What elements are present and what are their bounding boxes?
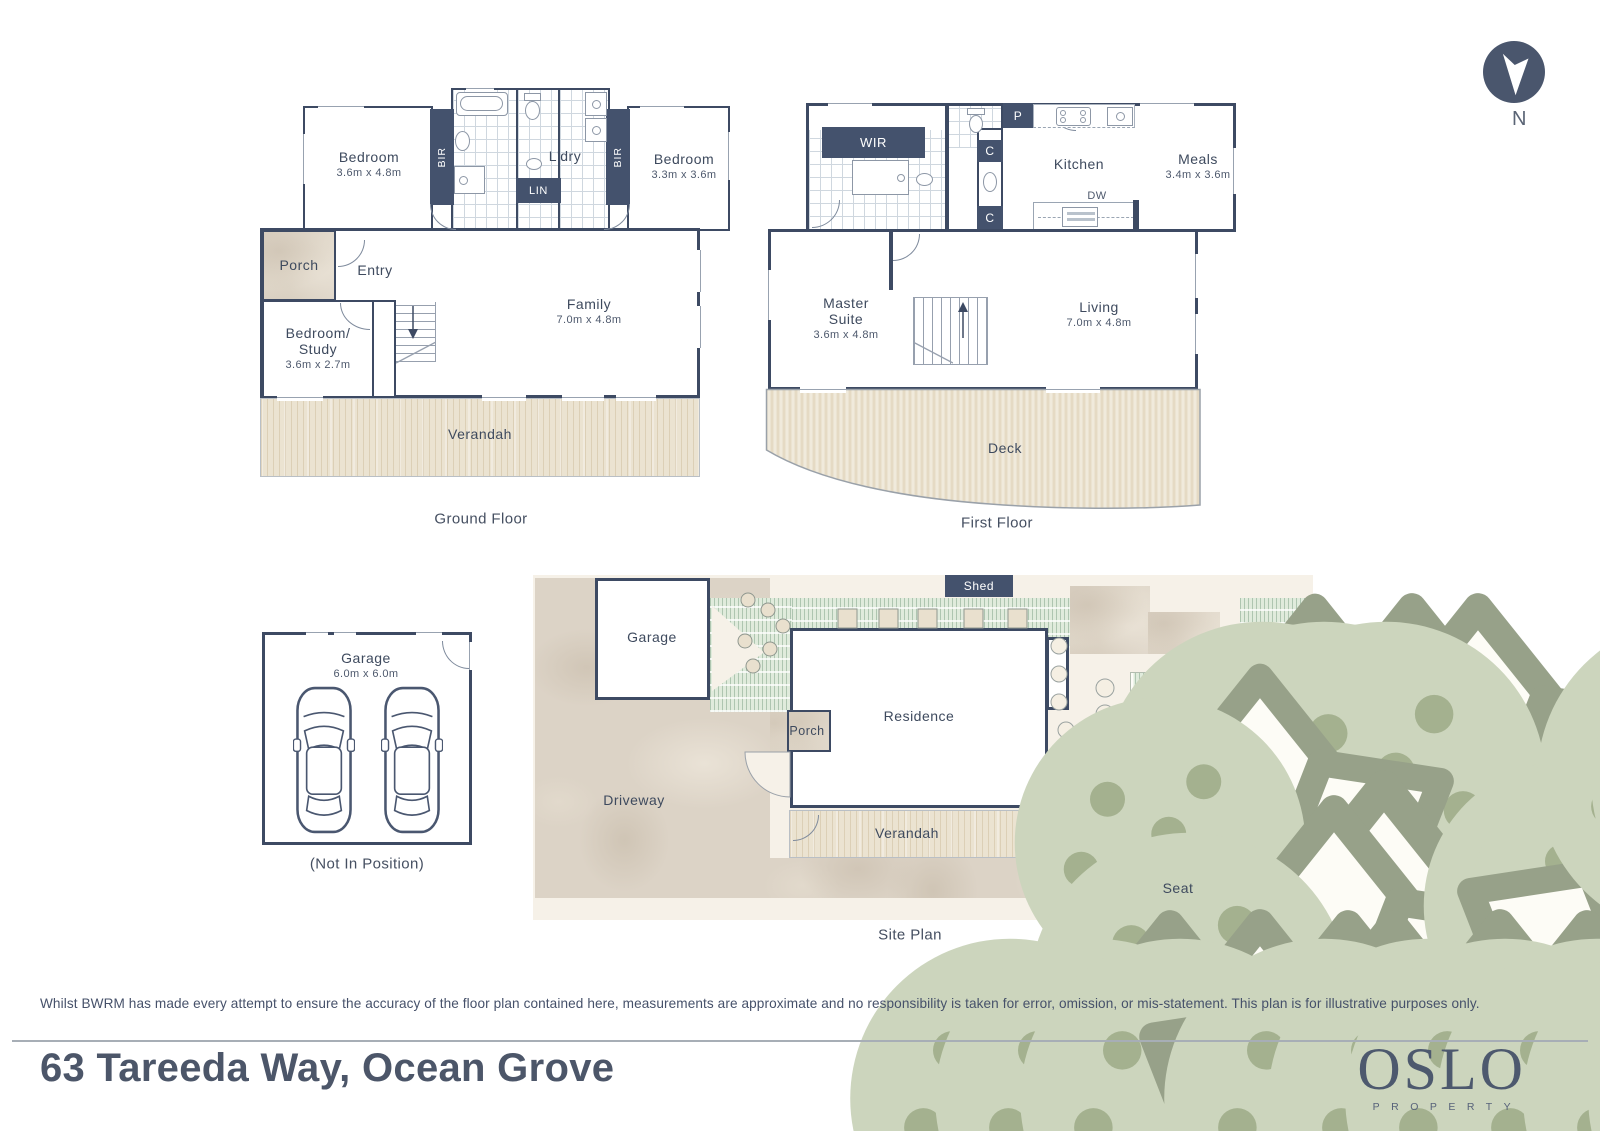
gf-stair-wall xyxy=(372,300,396,398)
shower-icon xyxy=(454,166,485,194)
ff-wir: WIR xyxy=(822,127,925,158)
gf-wc-basin-icon xyxy=(526,158,542,170)
floorplan-sheet: N BIR BIR LIN xyxy=(0,0,1600,1131)
window xyxy=(466,85,494,92)
ff-toilet-icon xyxy=(969,115,983,133)
ff-stair-line xyxy=(913,340,953,364)
gf-stair-line xyxy=(396,338,436,364)
window xyxy=(300,134,307,184)
site-porch-label: Porch xyxy=(789,724,824,738)
window xyxy=(1192,314,1199,354)
north-label: N xyxy=(1512,108,1526,131)
footer-divider xyxy=(12,1040,1588,1042)
window xyxy=(416,629,442,636)
ff-cupboard-basin-icon xyxy=(983,172,997,192)
ff-c1-label: C xyxy=(985,144,994,158)
site-garage-label: Garage xyxy=(627,629,677,645)
gf-verandah-label: Verandah xyxy=(448,426,512,442)
site-verandah-label: Verandah xyxy=(875,825,939,841)
gf-family-label: Family7.0m x 4.8m xyxy=(557,296,622,326)
site-plan-caption: Site Plan xyxy=(878,927,942,944)
toilet-tank-icon xyxy=(524,93,541,101)
gf-bir-right: BIR xyxy=(606,109,630,205)
ff-wir-label: WIR xyxy=(860,135,887,150)
disclaimer-text: Whilst BWRM has made every attempt to en… xyxy=(40,996,1570,1011)
window xyxy=(765,270,772,320)
window xyxy=(697,250,704,292)
ff-meals-label: Meals3.4m x 3.6m xyxy=(1166,151,1231,181)
window xyxy=(828,100,872,107)
dishwasher-icon xyxy=(1062,207,1098,227)
window xyxy=(306,629,328,636)
gf-bir-left-label: BIR xyxy=(436,147,448,168)
gf-porch-label: Porch xyxy=(279,257,318,273)
ff-cupboard-top: C xyxy=(977,140,1003,162)
ff-living-label: Living7.0m x 4.8m xyxy=(1067,299,1132,329)
window xyxy=(334,629,356,636)
north-arrow-icon xyxy=(1483,41,1547,105)
car-icon xyxy=(293,686,355,834)
stair-up-arrow-icon xyxy=(955,300,971,340)
window xyxy=(616,394,656,401)
car-icon xyxy=(381,686,443,834)
gf-bedroom1-door-arc xyxy=(430,204,456,230)
gf-bir-left: BIR xyxy=(430,109,454,205)
gf-linen-label: LIN xyxy=(529,185,548,197)
property-address: 63 Tareeda Way, Ocean Grove xyxy=(40,1046,614,1091)
stair-down-arrow-icon xyxy=(405,306,421,340)
ff-pantry-label: P xyxy=(1014,109,1023,123)
ff-deck-area xyxy=(765,388,1202,513)
ff-shower-icon xyxy=(852,160,909,195)
site-driveway-label: Driveway xyxy=(603,792,665,808)
window xyxy=(277,394,323,401)
ground-floor-caption: Ground Floor xyxy=(434,511,527,528)
gf-bedroom1-label: Bedroom3.6m x 4.8m xyxy=(337,149,402,179)
window xyxy=(1192,254,1199,298)
ff-kitchen-label: Kitchen xyxy=(1054,156,1104,172)
gf-basin-icon xyxy=(455,131,470,151)
oven-icon xyxy=(1107,107,1133,126)
site-residence-label: Residence xyxy=(884,708,955,724)
agency-logo-name: OSLO xyxy=(1357,1038,1526,1101)
site-decor xyxy=(533,575,1333,925)
gf-bedroom2-label: Bedroom3.3m x 3.6m xyxy=(652,151,717,181)
window xyxy=(725,132,732,180)
garage-plan-label: Garage6.0m x 6.0m xyxy=(334,650,399,680)
stove-icon xyxy=(1056,107,1091,126)
gf-study-label: Bedroom/Study 3.6m x 2.7m xyxy=(286,325,351,371)
window xyxy=(562,394,604,401)
ff-c2-label: C xyxy=(985,211,994,225)
ff-pantry: P xyxy=(1003,103,1033,128)
window xyxy=(640,103,684,110)
ff-wall xyxy=(945,106,949,229)
ff-vanity-icon xyxy=(916,173,933,186)
agency-logo-tagline: PROPERTY xyxy=(1357,1101,1526,1113)
window xyxy=(697,306,704,348)
window xyxy=(1140,100,1194,107)
agency-logo: OSLO PROPERTY xyxy=(1357,1038,1526,1113)
ff-deck-label: Deck xyxy=(988,440,1022,456)
gf-linen: LIN xyxy=(516,178,561,203)
ff-toilet-tank-icon xyxy=(967,108,985,115)
window xyxy=(318,103,364,110)
gf-laundry-label: L'dry xyxy=(549,148,581,164)
window xyxy=(1046,386,1100,393)
site-seat-label: Seat xyxy=(1163,880,1194,896)
toilet-icon xyxy=(525,101,540,120)
window xyxy=(1230,148,1237,194)
window xyxy=(482,394,526,401)
gf-entry-label: Entry xyxy=(357,262,392,278)
window xyxy=(800,386,846,393)
site-plan: Shed xyxy=(533,575,1333,925)
first-floor-caption: First Floor xyxy=(961,515,1033,532)
ff-cupboard-bottom: C xyxy=(977,206,1003,230)
bathtub-icon xyxy=(456,92,508,116)
washer-icon xyxy=(585,92,607,116)
ff-dw-label: DW xyxy=(1087,190,1106,202)
garage-caption: (Not In Position) xyxy=(310,856,424,873)
gf-bir-right-label: BIR xyxy=(612,147,624,168)
dryer-icon xyxy=(585,118,607,142)
ff-master-label: MasterSuite 3.6m x 4.8m xyxy=(814,295,879,341)
